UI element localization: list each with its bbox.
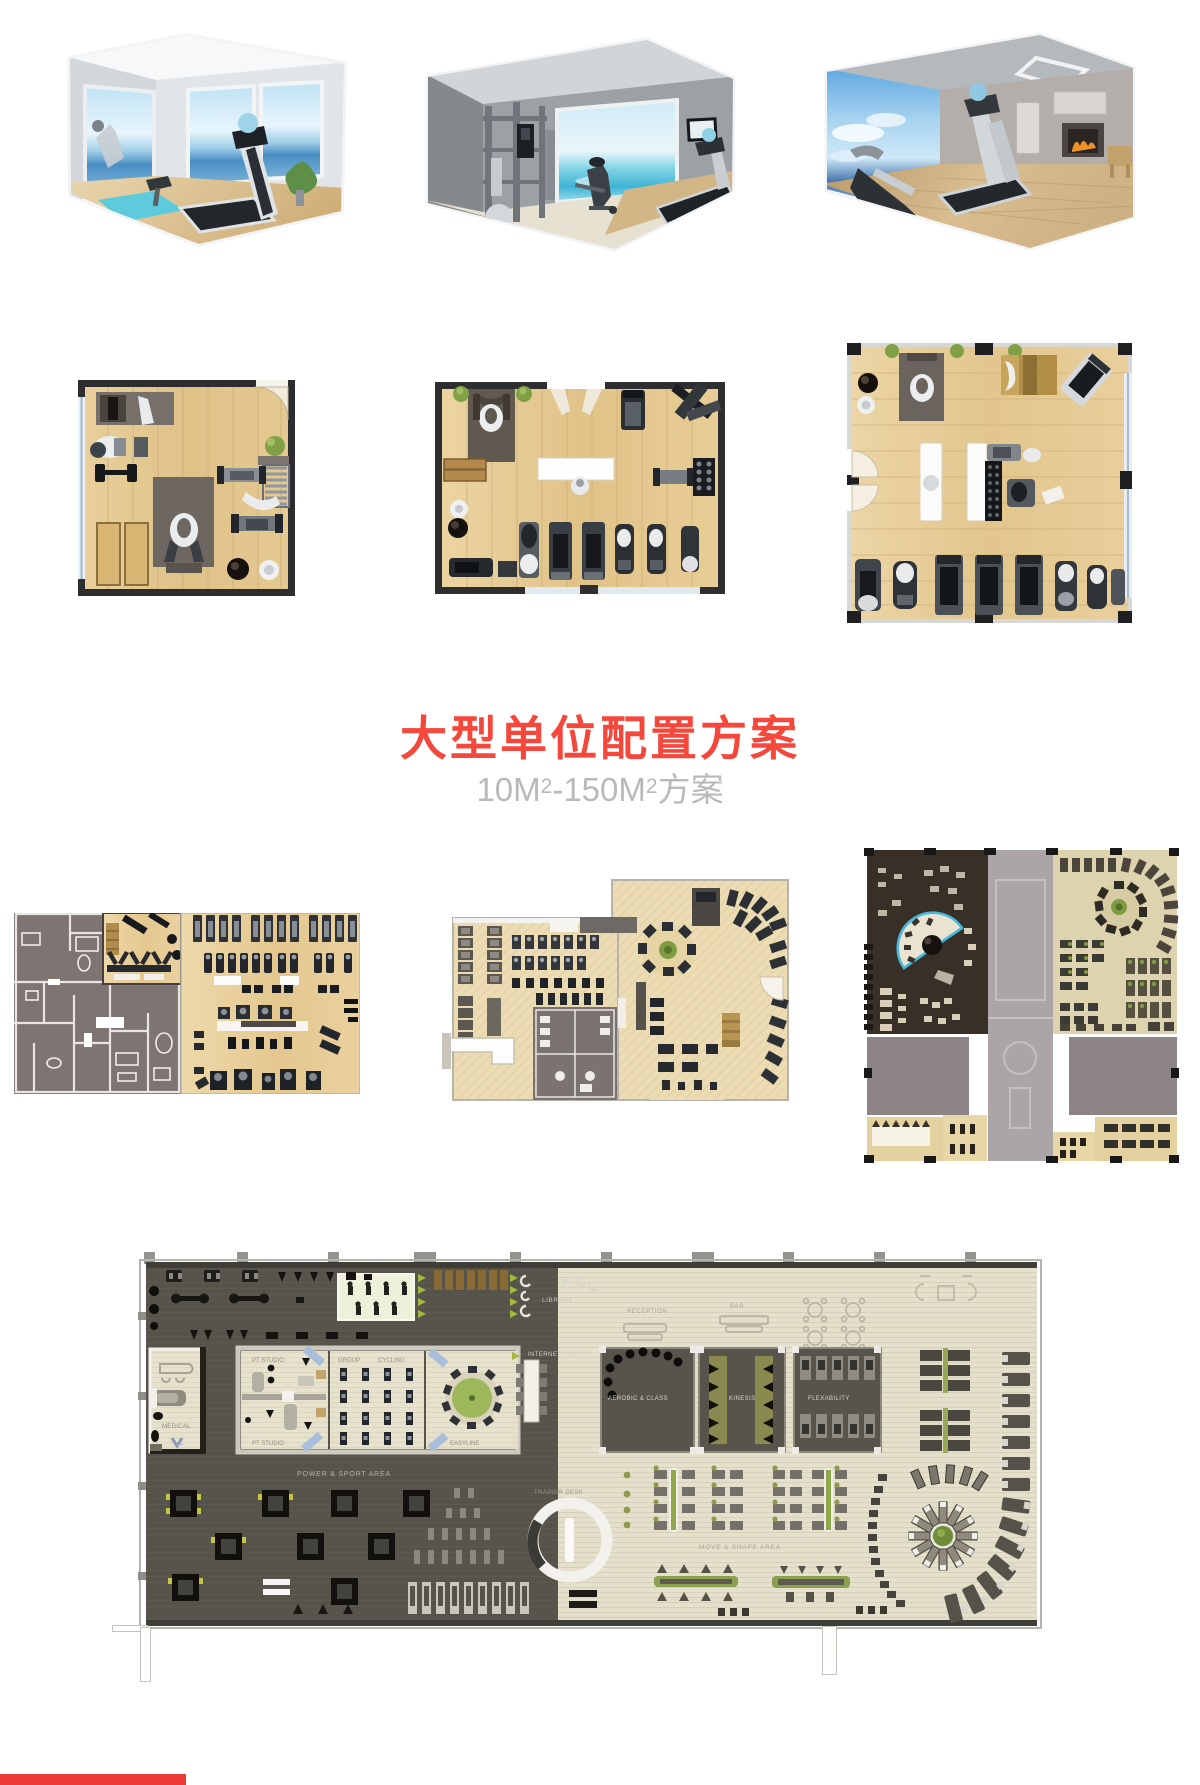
svg-text:PT STUDIO: PT STUDIO (252, 1441, 284, 1447)
svg-text:PT STUDIO: PT STUDIO (252, 1358, 284, 1364)
svg-text:GROUP: GROUP (338, 1358, 360, 1364)
svg-text:RECEPTION: RECEPTION (627, 1309, 667, 1315)
svg-text:EASYLINE: EASYLINE (450, 1441, 479, 1447)
svg-text:TRAINER DESK: TRAINER DESK (534, 1490, 583, 1496)
svg-text:INTERNET POINT: INTERNET POINT (528, 1352, 584, 1358)
svg-text:LIBRARY: LIBRARY (542, 1297, 573, 1304)
svg-text:AEROBIC & CLASS: AEROBIC & CLASS (608, 1396, 668, 1402)
svg-text:FLEXABILITY: FLEXABILITY (808, 1396, 850, 1402)
svg-text:MEDICAL: MEDICAL (162, 1424, 191, 1430)
svg-text:CYCLING: CYCLING (378, 1358, 405, 1364)
svg-text:MOVE & SHAPE AREA: MOVE & SHAPE AREA (699, 1544, 781, 1551)
svg-text:KINESIS: KINESIS (729, 1396, 755, 1402)
svg-text:POWER & SPORT AREA: POWER & SPORT AREA (297, 1471, 391, 1478)
svg-text:BAR: BAR (730, 1304, 744, 1310)
